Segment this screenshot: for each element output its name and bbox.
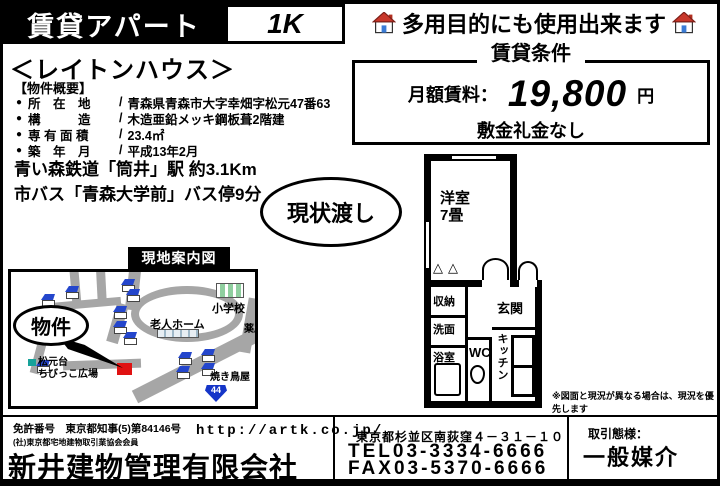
detail-separator: / [119,111,122,125]
kitchen-label: キッチン [494,333,510,399]
layout-type-text: 1K [267,8,303,40]
house-icon [126,289,140,301]
footer-column-divider [567,417,569,479]
rental-flyer: 賃貸アパート 1K 多用目的にも使用出来ます 賃貸条件 月額賃料： 19,800… [0,0,720,486]
license-number: 免許番号 東京都知事(5)第84146号 [13,421,181,436]
closet-door-marks: △△ [433,260,463,276]
house-icon [178,352,192,364]
floorplan-wall [492,327,535,330]
tagline: 多用目的にも使用出来ます [352,6,716,40]
yakitori-label: 焼き鳥屋 [210,368,250,383]
property-bubble: 物件 [13,305,89,346]
page-title: 賃貸アパート [3,4,225,44]
school-label: 小学校 [212,300,245,316]
tagline-text: 多用目的にも使用出来ます [402,7,666,39]
playground-label-line1: 松元台 [38,357,98,369]
route-badge: 44 [205,385,227,402]
frame-top [0,0,720,4]
floorplan-wall [431,315,465,318]
floorplan-disclaimer: ※図面と現況が異なる場合は、現況を優先します [552,389,720,415]
access-line-train: 青い森鉄道「筒井」駅 約3.1Km [14,158,261,183]
school-icon [216,283,244,298]
route-number: 44 [211,385,221,402]
pharmacy-label: 薬局 [244,320,258,335]
floorplan-wall [465,287,468,401]
main-room-size: 7畳 [440,207,470,224]
floorplan: 洋室 7畳 △△ 収納 洗面 浴室 WC キッチン 玄関 [424,154,542,408]
detail-label: 築 年 月 [28,141,114,160]
map-title: 現地案内図 [128,247,230,269]
floorplan-wall [465,337,492,340]
main-room-type: 洋室 [440,190,470,207]
closet-label: 収納 [433,293,455,309]
bullet-icon: ● [16,145,22,156]
floorplan-wall [511,365,535,368]
deposit-note: 敷金礼金なし [355,117,707,143]
rent-unit: 円 [637,82,654,107]
frame-left [0,0,3,486]
bullet-icon: ● [16,97,22,108]
floorplan-wall [431,345,465,348]
footer-divider [0,415,720,417]
rent-row: 月額賃料： 19,800 円 [355,73,707,115]
layout-type-badge: 1K [225,4,345,44]
condition-badge: 現状渡し [260,177,402,247]
house-icon [672,12,696,34]
house-icon [123,332,137,344]
rental-terms-title: 賃貸条件 [477,41,585,67]
window-icon [452,154,496,161]
property-details: ● 所 在 地 / 青森県青森市大字幸畑字松元47番63 ● 構 造 / 木造亜… [16,94,330,158]
entrance-label: 玄関 [497,298,523,317]
detail-row-built: ● 築 年 月 / 平成13年2月 [16,142,330,158]
bath-label: 浴室 [433,349,455,365]
rental-terms-box: 賃貸条件 月額賃料： 19,800 円 敷金礼金なし [352,60,710,145]
access-info: 青い森鉄道「筒井」駅 約3.1Km 市バス「青森大学前」バス停9分 [14,158,261,207]
house-icon [201,349,215,361]
house-icon [65,286,79,298]
washroom-label: 洗面 [433,321,455,337]
frame-bottom [0,479,720,486]
transaction-type-value: 一般媒介 [583,440,679,472]
bathtub-icon [434,363,461,396]
house-icon [176,366,190,378]
detail-value: 平成13年2月 [128,141,199,160]
area-map: 小学校 薬局 老人ホーム 松元台 ちびっこ広場 焼き鳥屋 44 物件 [8,269,258,409]
rent-label: 月額賃料： [408,81,498,107]
house-icon [113,306,127,318]
detail-separator: / [119,95,122,109]
door-arc-icon [518,261,538,281]
detail-separator: / [119,127,122,141]
playground-icon [28,359,36,366]
house-icon [372,12,396,34]
fax-number: FAX03-5370-6666 [348,458,548,480]
access-line-bus: 市バス「青森大学前」バス停9分 [14,183,261,208]
playground-label-line2: ちびっこ広場 [38,369,98,381]
wc-label: WC [469,345,491,360]
playground-label: 松元台 ちびっこ広場 [38,357,98,380]
main-room-label: 洋室 7畳 [440,190,470,225]
page-title-text: 賃貸アパート [27,5,200,44]
bullet-icon: ● [16,113,22,124]
door-opening [519,280,537,287]
nursing-home-label: 老人ホーム [150,316,205,332]
property-marker [117,363,132,375]
bullet-icon: ● [16,129,22,140]
detail-separator: / [119,143,122,157]
floorplan-service-area: 収納 洗面 浴室 WC キッチン 玄関 [424,280,542,408]
rent-amount: 19,800 [508,73,627,115]
door-arc-icon [482,258,509,281]
window-icon [424,222,431,268]
door-opening [482,280,510,287]
toilet-icon [470,365,485,384]
